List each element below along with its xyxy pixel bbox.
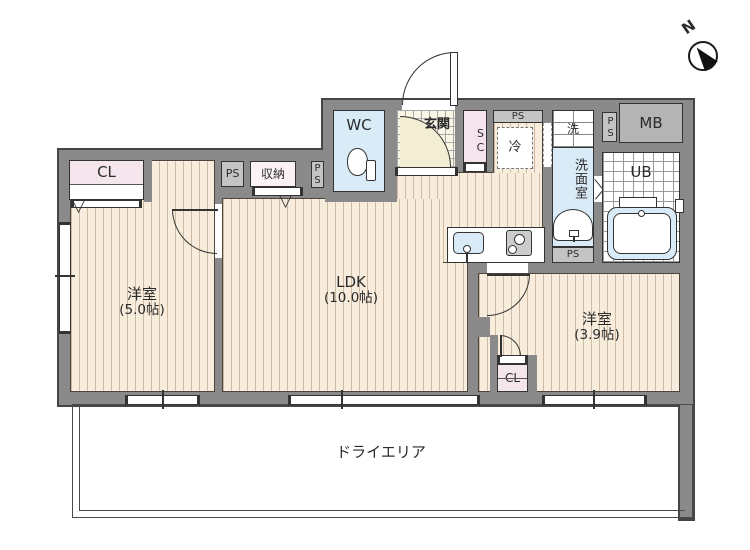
entrance-label: 玄関 — [407, 118, 467, 133]
pipe-space-vert-east: PS — [602, 112, 617, 142]
pipe-space-hall: PS — [493, 110, 543, 123]
entrance-door-arc — [402, 52, 455, 105]
sink-faucet-icon — [463, 245, 471, 253]
window-west — [59, 222, 71, 334]
storage-door-frame — [252, 187, 303, 196]
pipe-space-washroom: PS — [552, 247, 594, 263]
window-mullion — [341, 390, 343, 409]
closet-shelf-line — [70, 184, 143, 185]
toilet-icon — [347, 148, 368, 176]
storage-door-mark: ▽ — [279, 193, 292, 210]
washbasin-drain-icon — [573, 237, 575, 242]
dry-area-label: ドライエリア — [281, 444, 481, 461]
bedroom-east-size: (3.9帖) — [537, 328, 657, 344]
doorway-bedroom-east — [487, 263, 528, 273]
floor-plan: ドライエリア CL ▽ PS 収納 ▽ PS WC 玄関 SC PS 冷 洗 洗… — [0, 0, 750, 550]
stove-burner-icon — [508, 245, 517, 254]
bedroom-west-label: 洋室 — [82, 286, 202, 303]
bath-faucet-icon — [638, 210, 645, 217]
wall — [144, 158, 152, 202]
washroom-label: 洗面室 — [560, 150, 586, 208]
bedroom-west-size: (5.0帖) — [82, 303, 202, 319]
window-mullion — [162, 390, 164, 409]
closet-east-door-leaf — [500, 335, 502, 357]
wall — [528, 355, 537, 392]
window-mullion — [55, 275, 75, 277]
shoe-closet: SC — [463, 110, 487, 163]
bath-handle-icon — [675, 199, 684, 213]
shoe-closet-door-frame — [463, 163, 487, 172]
doorway-washroom — [543, 123, 552, 167]
ldk-label: LDK — [291, 274, 411, 291]
bedroom-west-door-leaf — [172, 209, 218, 211]
toilet-tank-icon — [366, 160, 376, 181]
pipe-space-top: PS — [221, 161, 244, 187]
compass-north-label: N — [675, 14, 703, 41]
sink-faucet-stem — [466, 253, 468, 263]
washer-space: 洗 — [552, 110, 594, 148]
pipe-space-vert-west: PS — [311, 161, 324, 188]
bathtub-inner — [613, 213, 671, 254]
bedroom-east-label: 洋室 — [537, 311, 657, 328]
unit-bath-label: UB — [611, 164, 671, 181]
closet-shelf-line — [498, 378, 527, 379]
storage-box: 収納 — [250, 161, 296, 187]
closet-door-mark: ▽ — [72, 198, 85, 215]
meter-box: MB — [619, 103, 683, 143]
entrance-door-leaf — [450, 52, 458, 106]
entrance-step-frame — [395, 167, 458, 176]
closet-west-label: CL — [69, 164, 144, 181]
wall — [478, 317, 490, 337]
floor-hall — [397, 172, 443, 199]
window-south-2 — [288, 395, 480, 405]
stove-burner-icon — [514, 234, 525, 245]
wc-label: WC — [333, 117, 385, 134]
washbasin-faucet-icon — [569, 230, 579, 237]
bedroom-east-door-leaf — [487, 274, 530, 276]
window-mullion — [593, 390, 595, 409]
refrigerator-space: 冷 — [497, 127, 533, 169]
ldk-size: (10.0帖) — [291, 291, 411, 307]
